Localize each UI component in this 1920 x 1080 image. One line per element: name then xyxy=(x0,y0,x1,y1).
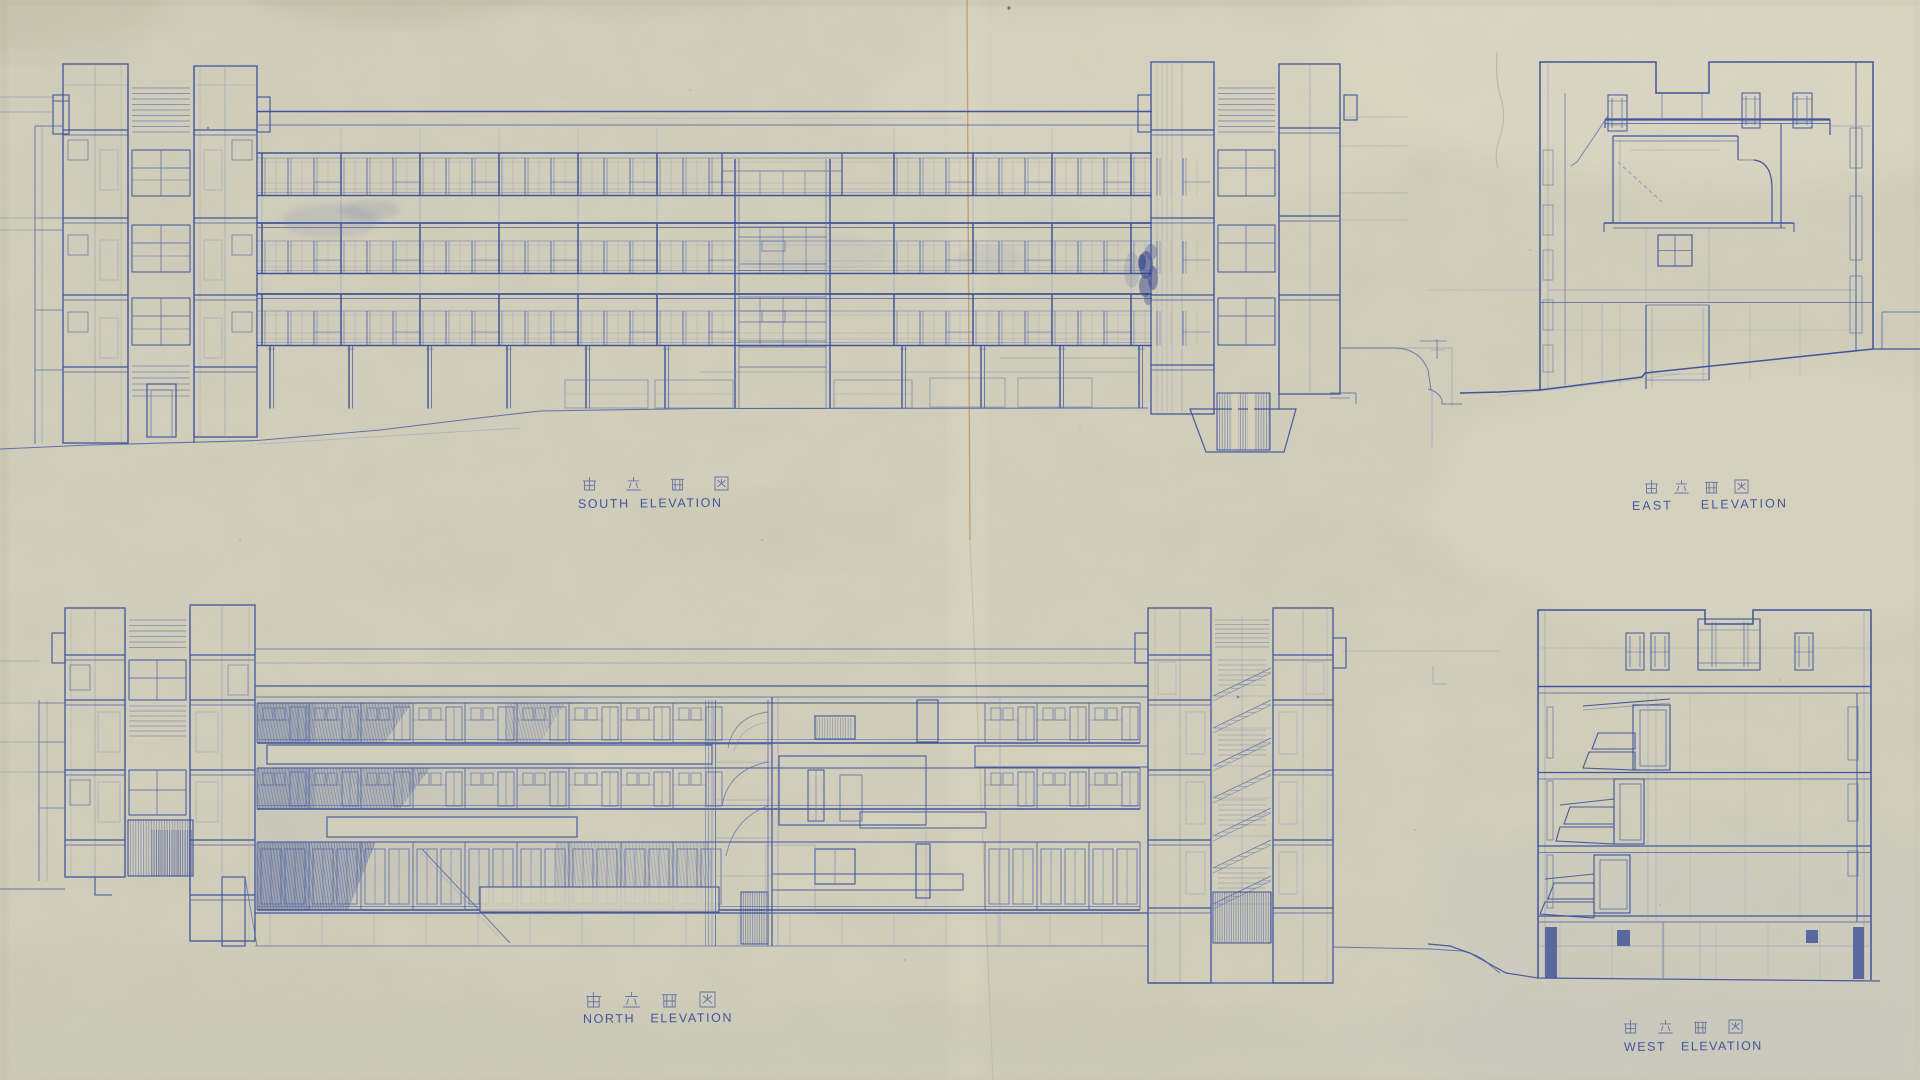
svg-text:EAST ELEVATION: EAST ELEVATION xyxy=(1632,496,1788,513)
svg-text:SOUTH ELEVATION: SOUTH ELEVATION xyxy=(578,496,723,511)
svg-text:WEST ELEVATION: WEST ELEVATION xyxy=(1624,1039,1763,1054)
svg-text:NORTH ELEVATION: NORTH ELEVATION xyxy=(583,1011,733,1026)
